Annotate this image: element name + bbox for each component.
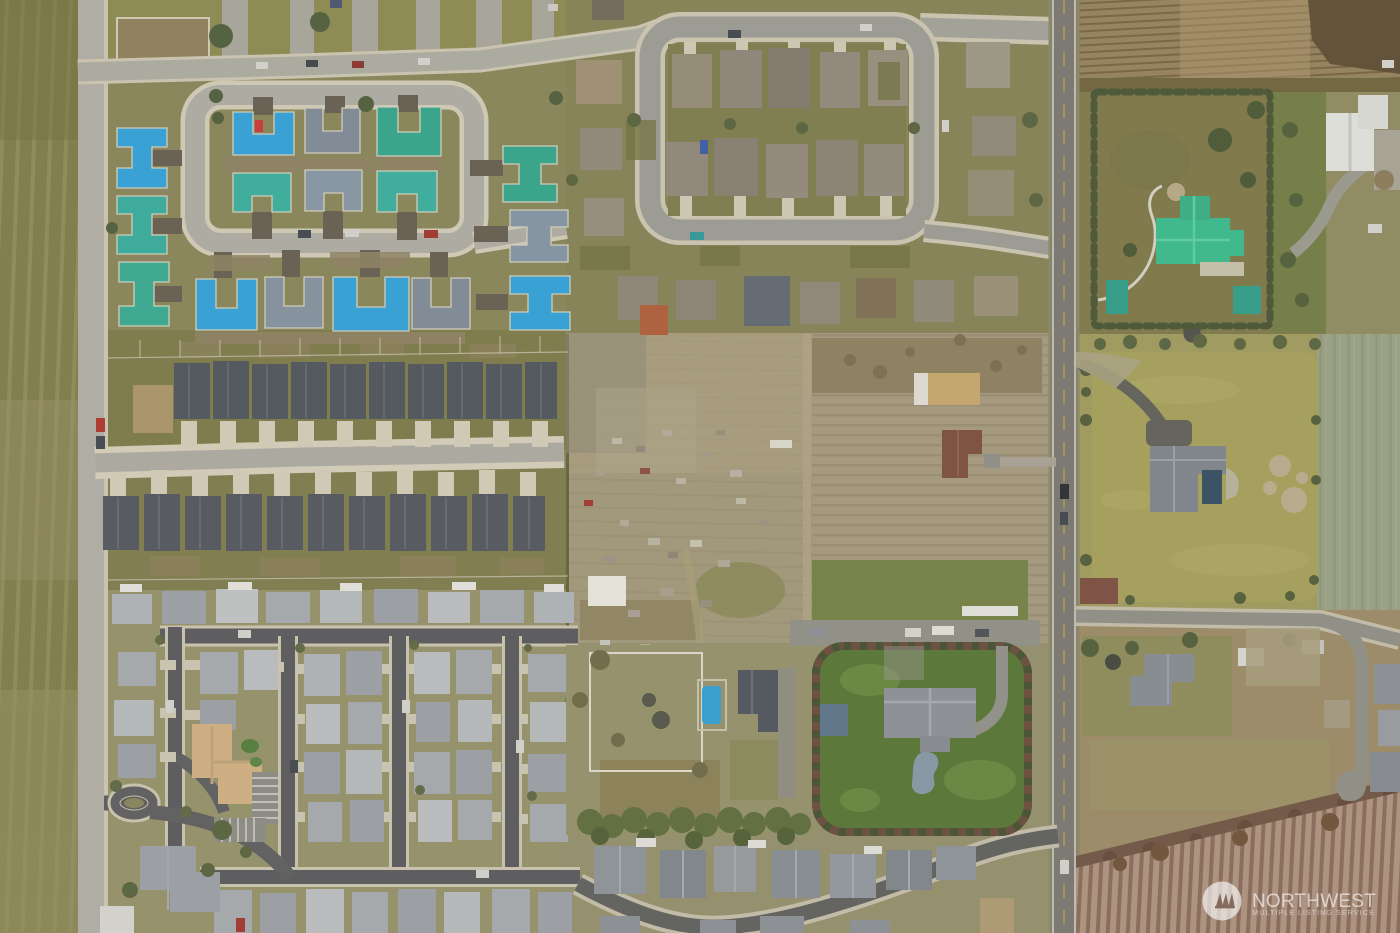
svg-text:MULTIPLE LISTING SERVICE: MULTIPLE LISTING SERVICE bbox=[1252, 908, 1375, 917]
